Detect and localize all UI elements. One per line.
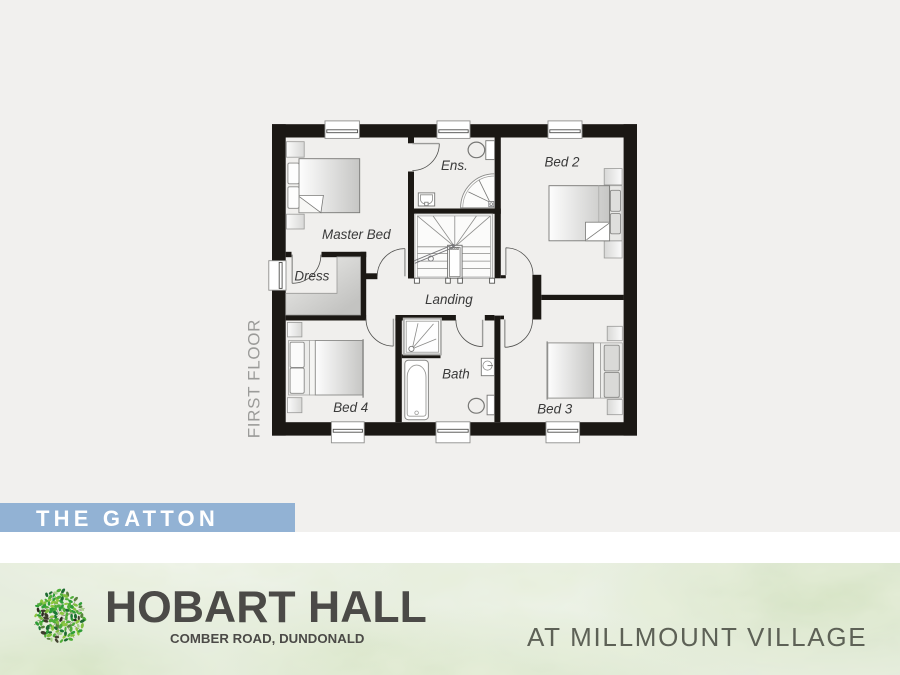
svg-text:Dress: Dress [294,268,329,283]
svg-text:Bed 4: Bed 4 [333,400,368,415]
svg-text:Master Bed: Master Bed [322,227,391,242]
svg-text:Bath: Bath [442,367,470,382]
svg-text:Bed 2: Bed 2 [545,154,581,169]
svg-text:FIRST FLOOR: FIRST FLOOR [244,319,263,438]
svg-text:Landing: Landing [425,292,473,307]
svg-text:Bed 3: Bed 3 [537,401,573,416]
svg-text:Ens.: Ens. [441,158,468,173]
